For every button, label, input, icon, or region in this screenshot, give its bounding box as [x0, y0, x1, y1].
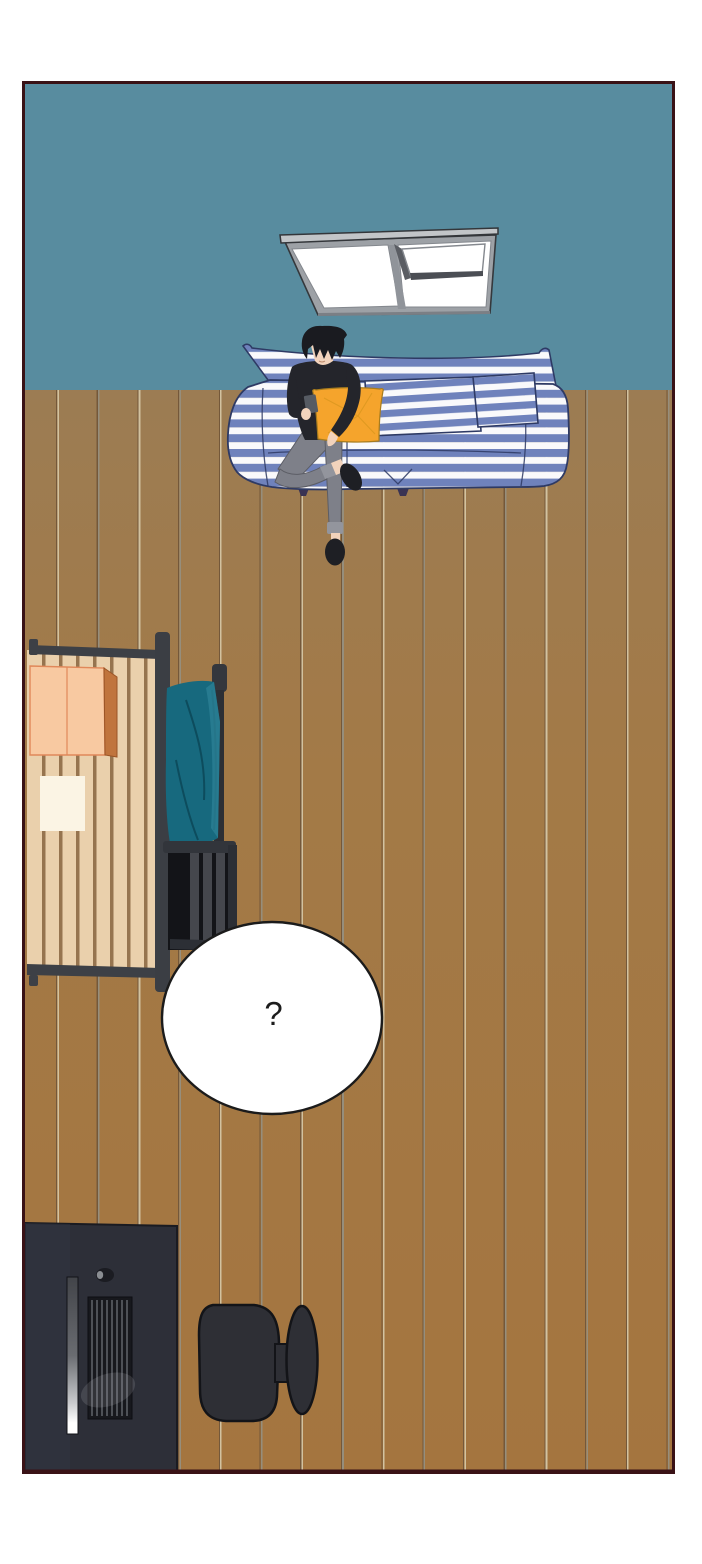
svg-text:?: ? [264, 995, 282, 1032]
